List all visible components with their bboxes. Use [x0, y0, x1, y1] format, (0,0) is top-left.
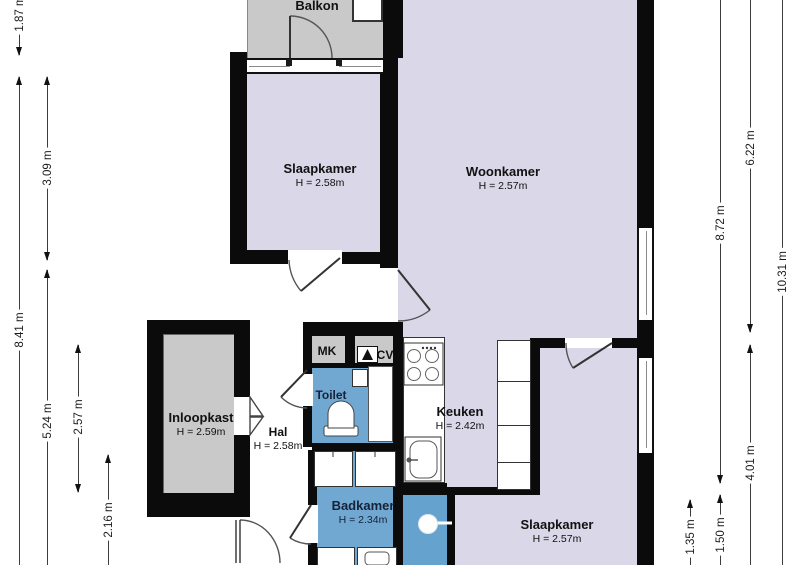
window-glass — [339, 66, 381, 67]
window-glass — [646, 361, 647, 448]
dimension-2.16m: 2.16 m — [108, 455, 109, 565]
room-name: Hal — [218, 425, 338, 440]
dimension-1.87m: 1.87 m — [19, 0, 20, 55]
wall — [447, 495, 455, 565]
dimension-1.50m: 1.50 m — [720, 495, 721, 565]
room-fill-slaapkamer-1 — [245, 58, 380, 253]
dimension-label: 1.35 m — [685, 516, 697, 557]
bedroom1-door-arc — [289, 260, 301, 291]
room-label-badkamer: Badkamer H = 2.34m — [303, 498, 423, 527]
wall — [637, 320, 654, 358]
room-name: Balkon — [257, 0, 377, 14]
wall — [303, 322, 403, 336]
dimension-5.24m: 5.24 m — [47, 270, 48, 565]
window-mullion — [336, 59, 342, 66]
dimension-3.09m: 3.09 m — [47, 77, 48, 260]
room-name: Slaapkamer — [487, 517, 627, 533]
wall — [530, 338, 540, 495]
room-name: Slaapkamer — [250, 161, 390, 177]
dimension-10.31m: 10.31 m — [782, 0, 783, 565]
room-name: Badkamer — [303, 498, 423, 514]
door-opening — [380, 268, 398, 322]
wall — [234, 320, 250, 397]
room-fill-slaapkamer-2 — [540, 348, 637, 495]
toilet-handbasin — [352, 369, 368, 387]
bathroom-cabinet — [317, 547, 355, 565]
washing-machine — [357, 547, 397, 565]
room-label-balkon: Balkon — [257, 0, 377, 14]
wall — [383, 0, 403, 58]
dimension-2.57m: 2.57 m — [78, 345, 79, 492]
window-glass — [249, 66, 290, 67]
room-height: H = 2.58m — [218, 440, 338, 453]
front-door-arc — [240, 520, 280, 563]
room-label-slaapkamer-1: Slaapkamer H = 2.58m — [250, 161, 390, 190]
wall — [230, 250, 288, 264]
toilet-niche — [368, 366, 393, 442]
room-height: H = 2.34m — [303, 514, 423, 527]
window — [637, 358, 654, 453]
arrowhead — [105, 454, 111, 463]
dimension-8.72m: 8.72 m — [720, 0, 721, 483]
dimension-label: 1.87 m — [14, 0, 26, 35]
room-label-toilet: Toilet — [301, 388, 361, 403]
arrowhead — [16, 76, 22, 85]
front-door-leaf — [236, 520, 240, 563]
wall — [398, 483, 447, 495]
room-height: H = 2.58m — [250, 177, 390, 190]
dimension-label: 2.57 m — [73, 396, 85, 437]
arrowhead — [75, 484, 81, 493]
room-name: Inloopkast — [141, 410, 261, 426]
wall — [637, 0, 654, 228]
arrowhead — [747, 344, 753, 353]
room-label-hal: Hal H = 2.58m — [218, 425, 338, 453]
cabinet-divider — [498, 381, 530, 382]
arrowhead — [687, 499, 693, 508]
wall — [303, 366, 312, 374]
room-name: CV — [371, 348, 399, 363]
wall — [230, 52, 247, 264]
window-mullion — [286, 59, 292, 66]
dimension-1.35m: 1.35 m — [690, 500, 691, 565]
dimension-label: 1.50 m — [715, 514, 727, 555]
wall — [612, 338, 637, 348]
dimension-label: 2.16 m — [103, 499, 115, 540]
wall — [530, 338, 565, 348]
arrowhead — [75, 344, 81, 353]
dimension-label: 8.72 m — [715, 202, 727, 243]
floorplan-canvas: Balkon Slaapkamer H = 2.58m Woonkamer H … — [0, 0, 800, 565]
room-label-slaapkamer-2: Slaapkamer H = 2.57m — [487, 517, 627, 546]
wall — [342, 252, 382, 264]
window — [637, 228, 654, 320]
window — [247, 58, 383, 74]
dimension-label: 10.31 m — [777, 248, 789, 296]
room-name: Keuken — [400, 404, 520, 420]
arrowhead — [44, 76, 50, 85]
arrowhead — [44, 252, 50, 261]
dimension-6.22m: 6.22 m — [750, 0, 751, 332]
wall — [637, 453, 654, 565]
room-height: H = 2.57m — [487, 533, 627, 546]
arrowhead — [747, 324, 753, 333]
door-opening — [565, 338, 612, 348]
dimension-4.01m: 4.01 m — [750, 345, 751, 565]
dimension-label: 4.01 m — [745, 442, 757, 483]
dimension-8.41m: 8.41 m — [19, 77, 20, 565]
arrowhead — [44, 269, 50, 278]
bathroom-sink — [314, 451, 353, 487]
dimension-label: 3.09 m — [42, 147, 54, 188]
window-glass — [646, 231, 647, 315]
arrowhead — [16, 47, 22, 56]
room-height: H = 2.42m — [400, 420, 520, 433]
dimension-label: 6.22 m — [745, 127, 757, 168]
room-name: MK — [307, 344, 347, 359]
arrowhead — [717, 475, 723, 484]
dimension-label: 8.41 m — [14, 309, 26, 350]
bathroom-sink — [355, 451, 396, 487]
room-height: H = 2.57m — [433, 180, 573, 193]
room-name: Woonkamer — [433, 164, 573, 180]
wall — [308, 543, 317, 565]
cabinet-divider — [498, 462, 530, 463]
room-label-keuken: Keuken H = 2.42m — [400, 404, 520, 433]
room-name: Toilet — [301, 388, 361, 403]
arrowhead — [717, 494, 723, 503]
room-label-cv: CV — [371, 348, 399, 363]
room-label-woonkamer: Woonkamer H = 2.57m — [433, 164, 573, 193]
door-opening — [288, 250, 342, 264]
dimension-label: 5.24 m — [42, 400, 54, 441]
room-label-mk: MK — [307, 344, 347, 359]
